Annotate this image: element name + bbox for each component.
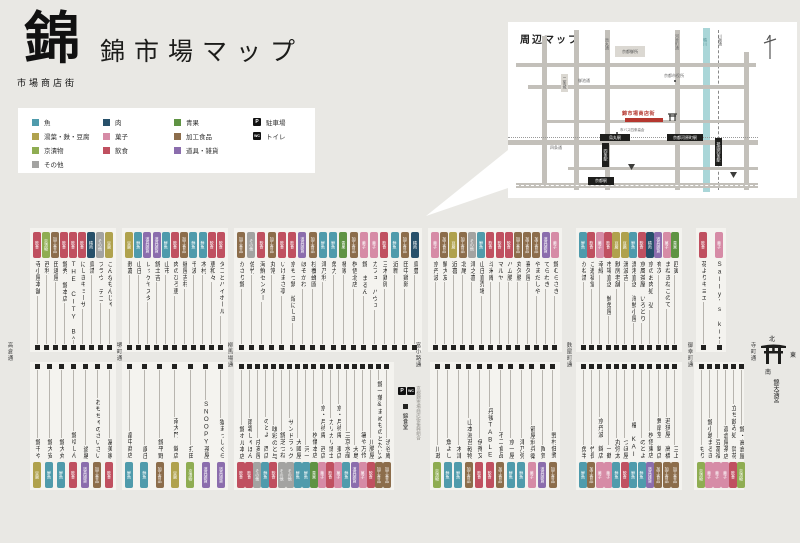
street-marker [460, 345, 465, 350]
category-chip-processed: 加工食品 [654, 462, 662, 488]
category-chip-dining: 飲食 [69, 232, 77, 258]
street-marker [154, 345, 159, 350]
shop-name: カフェ パヴェ [371, 261, 377, 309]
shop-item: 錦平野加工食品 [156, 362, 164, 490]
shop-name: 京丹波 [432, 261, 438, 281]
shop-item: 豆腐近喜 [449, 228, 457, 352]
legend-item-fish: 魚 [32, 118, 51, 126]
shop-item: 味彩のと与飲食 [269, 362, 277, 490]
category-chip-goods: 道具雑貨 [351, 462, 359, 488]
connector-line [583, 282, 584, 344]
connector-line [500, 370, 501, 431]
street-marker [361, 345, 366, 350]
street-marker [519, 364, 524, 369]
category-chip-label: 飲食 [477, 471, 481, 479]
category-chip-label: 飲食 [589, 241, 593, 249]
category-chip-label: 精肉 [89, 241, 93, 249]
category-chip-label: 飲食 [247, 471, 251, 479]
shop-name: タコとハイボール [218, 261, 224, 315]
category-chip-dining: 飲食 [638, 232, 646, 258]
label-kawaramachi-dori: 河原町通 [675, 34, 679, 50]
category-chip-label: 加工食品 [498, 467, 502, 483]
street-marker [71, 345, 76, 350]
street-marker [218, 364, 223, 369]
shop-name: 恵和々 [209, 261, 215, 281]
street-marker [606, 345, 611, 350]
category-chip-label: 鮮魚 [296, 471, 300, 479]
jr-line-dash [516, 185, 758, 186]
category-chip-sweets: 菓子 [431, 232, 439, 258]
landmark-gosho: 京都御所 [615, 46, 645, 57]
street-marker [200, 345, 205, 350]
category-chip-label: 道具雑貨 [83, 467, 87, 483]
legend-label: 青果 [186, 117, 199, 127]
street-marker [479, 345, 484, 350]
category-chip-dining: 飲食 [621, 462, 629, 488]
street-marker [614, 345, 619, 350]
shop-name: 三京水産 [343, 432, 349, 459]
street-marker [53, 345, 58, 350]
street-marker [136, 345, 141, 350]
shop-name: 廣庄 [141, 446, 147, 459]
shop-name: 大島 [351, 446, 357, 459]
shop-item: 道具雑貨有次 [654, 228, 662, 352]
connector-line [61, 370, 62, 438]
nishiki-market-map-page: 錦 市場商店街 錦市場マップ 魚湯葉・麩・豆腐京漬物その他肉菓子飲食青果加工食品… [0, 0, 800, 543]
category-chip-label: 鮮魚 [631, 241, 635, 249]
category-chip-dining: 飲食 [288, 232, 296, 258]
category-chip-label: 加工食品 [534, 237, 538, 253]
category-chip-label: 豆腐 [173, 471, 177, 479]
label-oike-dori: 御池通 [578, 79, 590, 83]
parking-shop-label: 錦食堂 [401, 413, 407, 430]
shop-name: 津乃弥 [518, 439, 524, 459]
legend-label: 駐車場 [266, 117, 286, 127]
shop-name: 木村 [199, 261, 205, 274]
street-marker [433, 345, 438, 350]
connector-line [542, 370, 543, 445]
shop-name: THE CITY BAKERY [70, 261, 76, 339]
street-marker [341, 345, 346, 350]
category-chip-label: 加工食品 [311, 237, 315, 253]
shop-name: 麩嘉 [126, 261, 132, 274]
connector-line [64, 303, 65, 344]
category-chip-fish: 鮮魚 [329, 232, 337, 258]
category-chip-label: 飲食 [498, 241, 502, 249]
street-marker [631, 345, 636, 350]
connector-line [462, 275, 463, 344]
street-marker [376, 364, 381, 369]
shop-item: 飲食恵和々 [208, 228, 216, 352]
shop-item: 一鶴菓子 [604, 362, 612, 490]
shop-name: 錦大丸 [58, 439, 64, 459]
category-chip-dining: 飲食 [486, 462, 494, 488]
connector-line [322, 282, 323, 344]
connector-line [370, 370, 371, 438]
category-chip-label: 加工食品 [589, 467, 593, 483]
shop-item: 飲食三木鶏卵 [380, 228, 388, 352]
shop-name: 錦むらさき [552, 261, 558, 295]
connector-line [701, 370, 702, 445]
connector-line [305, 370, 306, 445]
category-chip-label: 加工食品 [461, 237, 465, 253]
shop-name: 伊豫又 [476, 439, 482, 459]
category-chip-label: 菓子 [707, 471, 711, 479]
street-marker [188, 364, 193, 369]
shop-name: いけまさ亭 [279, 261, 285, 295]
shop-name: 千波 [190, 261, 196, 274]
street-marker [445, 364, 450, 369]
category-chip-goods: 道具雑貨 [654, 232, 662, 258]
connector-line [249, 370, 250, 418]
shop-block-north-4: 鮮魚かね清飲食ご進福堂菓子幸緑飲食市場直送 鮮魚屋豆腐麩房老舗豆腐湯波吉鮮魚漁港… [576, 228, 682, 352]
category-chip-pickles: 京漬物 [697, 462, 705, 488]
category-chip-label: 飲食 [290, 241, 294, 249]
connector-line [156, 282, 157, 344]
connector-line [583, 370, 584, 445]
category-chip-dining: 飲食 [699, 232, 707, 258]
shop-name: 錦ゆしん [70, 432, 76, 459]
shop-item: 道具雑貨レッゲヤスダ [143, 228, 151, 352]
street-marker [320, 364, 325, 369]
shop-item: その他津之喜 [468, 228, 476, 352]
category-chip-label: 鮮魚 [640, 471, 644, 479]
category-chip-processed: 加工食品 [268, 232, 276, 258]
shop-item: 菓子まねきねこのて [663, 228, 671, 352]
category-chip-label: 鮮魚 [136, 241, 140, 249]
legend-label: トイレ [266, 131, 286, 141]
category-chip-label: 鮮魚 [456, 471, 460, 479]
shop-item: カリカリ博士飲食 [326, 362, 334, 490]
category-chip-label: 菓子 [433, 241, 437, 249]
label-karasuma-dori: 烏丸通 [605, 38, 609, 50]
shop-name: 鳥豊 [412, 261, 418, 274]
category-chip-other: その他 [468, 232, 476, 258]
street-marker [739, 364, 744, 369]
category-chip-label: 菓子 [723, 471, 727, 479]
category-chip-pickles: 京漬物 [42, 232, 50, 258]
category-chip-fish: 鮮魚 [629, 462, 637, 488]
street-marker [639, 364, 644, 369]
shop-name: 冨美家 [106, 439, 112, 459]
street-marker [83, 364, 88, 369]
shop-item: 加工食品杉養蜂園 [309, 228, 317, 352]
shop-item: 飲食ハム勝 [505, 228, 513, 352]
shop-item: 飲食ご進福堂 [587, 228, 595, 352]
shop-name: 鯛大友 [441, 261, 447, 281]
shop-name: 川勝屋 [368, 439, 374, 459]
category-chip-other: その他 [253, 462, 261, 488]
category-chip-processed: 加工食品 [180, 232, 188, 258]
legend-facility-WC: WCトイレ [253, 132, 286, 140]
street-marker [247, 364, 252, 369]
shop-item: その他佐竹 [247, 228, 255, 352]
category-chip-produce: 青果 [339, 232, 347, 258]
connector-line [435, 282, 436, 344]
shop-item: 加工食品丸久勝 [514, 228, 522, 352]
category-chip-label: 道具雑貨 [656, 237, 660, 253]
connector-line [292, 323, 293, 344]
street-marker [127, 364, 132, 369]
category-chip-fish: 鮮魚 [302, 462, 310, 488]
category-chip-label: 鮮魚 [321, 241, 325, 249]
category-chip-label: 豆腐 [614, 241, 618, 249]
shop-item: つぼ屋飲食 [621, 362, 629, 490]
category-chip-pickles: 京漬物 [186, 462, 194, 488]
category-chip-fish: 鮮魚 [319, 232, 327, 258]
street-marker [581, 345, 586, 350]
street-marker [715, 364, 720, 369]
connector-line [273, 370, 274, 425]
category-chip-label: 飲食 [623, 471, 627, 479]
category-chip-goods: 道具雑貨 [202, 462, 210, 488]
shop-name: 三木鶏卵 [381, 261, 387, 288]
street-marker [295, 364, 300, 369]
shop-block-north-2: 加工食品かざり錦その他佐竹飲食海鮮センター加工食品丸常飲食いけまさ亭飲食京もつ鍋… [234, 228, 422, 352]
category-chip-label: 加工食品 [467, 467, 471, 483]
street-label-5: 御幸町通 [686, 342, 692, 368]
connector-line [220, 370, 221, 418]
street-marker [451, 345, 456, 350]
shop-item: 飲食マルヤ [496, 228, 504, 352]
category-chip-fish: 鮮魚 [454, 462, 462, 488]
shop-name: ご進福堂 [588, 261, 594, 288]
category-chip-processed: 加工食品 [663, 462, 671, 488]
street-marker [320, 345, 325, 350]
street-marker [145, 345, 150, 350]
connector-line [144, 370, 145, 445]
shop-name: 桝俉北店 [350, 261, 356, 288]
category-chip-label: 青果 [312, 471, 316, 479]
category-chip-sweets: 菓子 [596, 462, 604, 488]
legend-label: 肉 [115, 117, 122, 127]
shop-item: 豆腐麩嘉 [125, 228, 133, 352]
shop-name: もり [698, 446, 704, 459]
shop-item: のとよ 西店鮮魚 [261, 362, 269, 490]
shop-name: 北尾 [460, 261, 466, 274]
shop-item: 飲食にしきギョーザ [78, 228, 86, 352]
category-chip-fish: 鮮魚 [140, 462, 148, 488]
connector-line [536, 296, 537, 345]
other-color-swatch [32, 161, 39, 168]
sweets-color-swatch [103, 133, 110, 140]
shop-name: 錦千や [34, 439, 40, 459]
category-chip-label: 飲食 [701, 241, 705, 249]
connector-line [447, 370, 448, 438]
landmark-nijo: 二条城 [561, 74, 568, 92]
category-chip-label: 鮮魚 [446, 471, 450, 479]
street-marker [723, 364, 728, 369]
category-chip-label: 豆腐 [107, 241, 111, 249]
connector-line [257, 370, 258, 438]
shop-name: 三上 [672, 446, 678, 459]
category-chip-dining: 飲食 [245, 462, 253, 488]
shop-item: 立ち飲み処 賀花飲食 [729, 362, 737, 490]
shop-name: ハム勝 [506, 261, 512, 281]
category-chip-label: 加工食品 [182, 237, 186, 253]
shop-name: 魚よし [444, 439, 450, 459]
street-marker [508, 364, 513, 369]
category-chip-label: 鮮魚 [509, 471, 513, 479]
category-chip-sweets: 菓子 [715, 232, 723, 258]
connector-line [265, 370, 266, 417]
shop-name: 一鶴 [605, 446, 611, 459]
street-bar [568, 167, 758, 170]
street-marker [717, 345, 722, 350]
connector-line [490, 282, 491, 344]
shop-name: 佐竹 [248, 261, 254, 274]
shop-name: 箸や万作 [360, 432, 366, 459]
connector-line [552, 370, 553, 431]
category-chip-sweets: 菓子 [596, 232, 604, 258]
shop-block-south-0: 錦千や豆腐錦大安鮮魚錦大丸鮮魚錦ゆしん飲食遊膳道具雑貨おもちゃのさいさい加工食品… [30, 362, 116, 490]
category-chip-processed: 加工食品 [532, 232, 540, 258]
category-chip-goods: 道具雑貨 [538, 462, 546, 488]
shop-name: のとよ 西店 [262, 418, 268, 459]
category-chip-dining: 飲食 [171, 232, 179, 258]
category-chip-label: 菓子 [320, 471, 324, 479]
connector-line [49, 370, 50, 438]
category-chip-label: 飲食 [731, 471, 735, 479]
category-chip-tofu: 豆腐 [33, 462, 41, 488]
shop-name: 桝俉東店 [647, 432, 653, 459]
category-chip-label: 飲食 [219, 241, 223, 249]
connector-line [184, 289, 185, 344]
connector-line [414, 275, 415, 344]
connector-line [481, 296, 482, 345]
shop-name: にしきギョーザ [79, 261, 85, 308]
connector-line [241, 370, 242, 425]
shop-name: 京風茶屋 いろどり [638, 261, 644, 322]
connector-line [241, 289, 242, 344]
category-chip-goods: 道具雑貨 [81, 462, 89, 488]
connector-line [719, 340, 720, 344]
connector-line [641, 370, 642, 438]
category-chip-label: 道具雑貨 [155, 237, 159, 253]
shop-item: 飲食京もつ鍋 焔にしき [288, 228, 296, 352]
logo-subtitle: 市場商店街 [17, 76, 77, 89]
connector-line [338, 370, 339, 404]
shop-item: 加工食品丸常 [268, 228, 276, 352]
street-marker [497, 345, 502, 350]
category-chip-label: 加工食品 [385, 467, 389, 483]
category-chip-label: 飲食 [107, 471, 111, 479]
street-marker [249, 345, 254, 350]
legend-item-other: その他 [32, 160, 64, 168]
shop-name: 錦小路まるき [706, 419, 712, 459]
category-chip-label: 加工食品 [239, 237, 243, 253]
category-chip-label: その他 [255, 469, 259, 481]
category-chip-fish: 鮮魚 [629, 232, 637, 258]
category-chip-label: 飲食 [35, 241, 39, 249]
category-chip-other: その他 [278, 462, 286, 488]
category-chip-label: 飲食 [382, 241, 386, 249]
connector-line [46, 275, 47, 344]
category-chip-goods: 道具雑貨 [153, 232, 161, 258]
category-chip-label: 飲食 [71, 241, 75, 249]
street-marker [540, 364, 545, 369]
connector-line [55, 282, 56, 344]
street-marker [209, 345, 214, 350]
shop-item: その他ブラウ デコ [96, 228, 104, 352]
street-marker [456, 364, 461, 369]
legend-item-sweets: 菓子 [103, 132, 128, 140]
shop-name: 錦秀 錦本店 [61, 261, 67, 302]
shop-name: 遊膳 [82, 446, 88, 459]
connector-line [271, 275, 272, 344]
connector-line [527, 282, 528, 344]
shop-item: おもちゃのさいさい加工食品 [93, 362, 101, 490]
shop-name: のとよ [638, 439, 644, 459]
category-chip-sweets: 菓子 [604, 462, 612, 488]
category-chip-label: 加工食品 [352, 237, 356, 253]
shop-item: 箭屋利兵衛菓子 [528, 362, 536, 490]
street-marker [163, 345, 168, 350]
category-chip-fish: 鮮魚 [294, 462, 302, 488]
category-chip-label: 飲食 [210, 241, 214, 249]
street-marker [300, 345, 305, 350]
category-chip-processed: 加工食品 [156, 462, 164, 488]
category-chip-label: 加工食品 [158, 467, 162, 483]
category-chip-dining: 飲食 [278, 232, 286, 258]
shop-block-north-0: 飲食寺小屋本舗京漬物西利加工食品田邊屋飲食錦秀 錦本店飲食THE CITY BA… [30, 228, 116, 352]
category-chip-fish: 鮮魚 [391, 232, 399, 258]
shop-name: 田邊屋 [52, 261, 58, 281]
connector-line [73, 340, 74, 344]
category-chip-dining: 飲食 [78, 232, 86, 258]
shop-name: 山庄 [135, 261, 141, 274]
connector-line [73, 370, 74, 431]
shop-item: 打田京漬物 [186, 362, 194, 490]
shop-item: 加工食品田邊屋 [51, 228, 59, 352]
category-chip-processed: 加工食品 [350, 232, 358, 258]
connector-line [330, 370, 331, 418]
category-chip-label: その他 [98, 239, 102, 251]
connector-line [616, 370, 617, 438]
street-marker [360, 364, 365, 369]
shop-item: 木津鮮魚 [454, 362, 462, 490]
dining-color-swatch [103, 147, 110, 154]
shop-name: 錦ホル本店 [238, 426, 244, 460]
street-marker [664, 345, 669, 350]
category-chip-label: 鮮魚 [47, 471, 51, 479]
category-chip-fish: 鮮魚 [125, 462, 133, 488]
connector-line [363, 296, 364, 344]
shop-item: 丸弥太鮮魚 [612, 362, 620, 490]
category-chip-label: 飲食 [369, 471, 373, 479]
category-chip-sweets: 菓子 [528, 462, 536, 488]
street-marker [372, 345, 377, 350]
shop-name: 錦平野 [157, 439, 163, 459]
category-chip-label: 精肉 [413, 241, 417, 249]
shop-item: もり京漬物 [697, 362, 705, 490]
category-chip-label: 青果 [341, 241, 345, 249]
connector-line [109, 309, 110, 344]
connector-line [489, 370, 490, 407]
parking-icon: P [398, 387, 406, 395]
shop-item: 三上加工食品 [671, 362, 679, 490]
shop-name: 海鮮センター [258, 261, 264, 301]
shop-item: 豆腐湯波吉 [621, 228, 629, 352]
legend-facility-P: P駐車場 [253, 118, 286, 126]
street-label-6: 寺町通 [749, 342, 755, 362]
street-marker [550, 364, 555, 369]
label-kamo-river: 鴨川 [703, 38, 707, 46]
shop-name: 田中鶏卵 [402, 261, 408, 288]
connector-line [37, 296, 38, 345]
category-chip-label: 加工食品 [551, 467, 555, 483]
shop-name: 丸常 [269, 261, 275, 274]
